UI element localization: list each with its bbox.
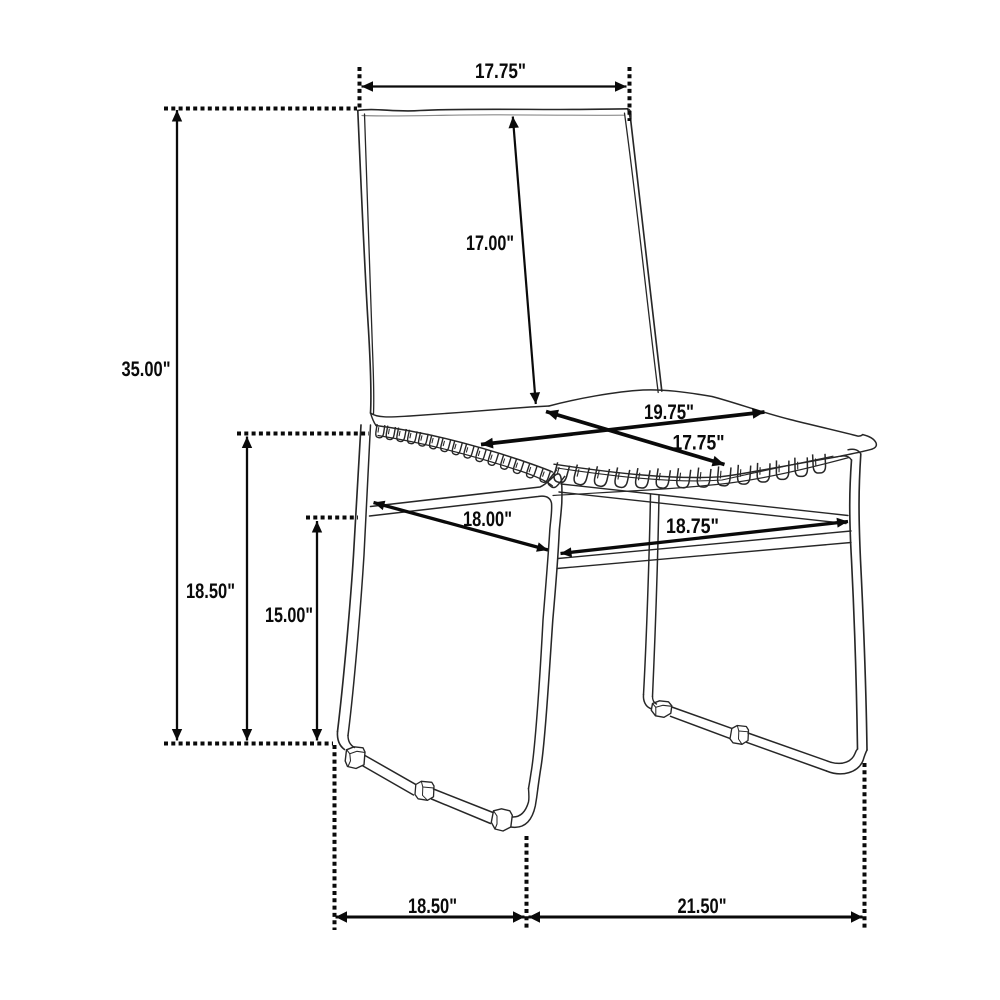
svg-text:35.00": 35.00" bbox=[121, 358, 170, 381]
svg-text:17.75": 17.75" bbox=[475, 60, 526, 83]
svg-text:18.75": 18.75" bbox=[666, 515, 719, 538]
svg-text:21.50": 21.50" bbox=[677, 895, 726, 918]
svg-text:18.50": 18.50" bbox=[186, 580, 235, 603]
svg-text:17.00": 17.00" bbox=[466, 232, 514, 255]
svg-text:18.50": 18.50" bbox=[408, 895, 457, 918]
svg-text:15.00": 15.00" bbox=[265, 604, 313, 627]
